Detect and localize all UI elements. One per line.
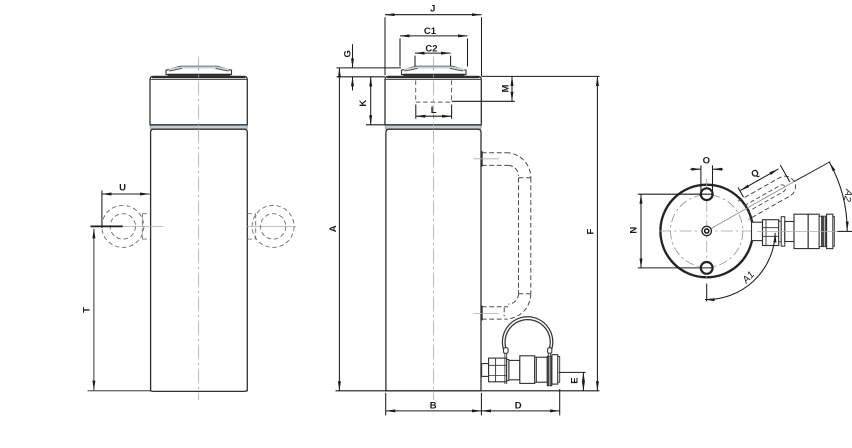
svg-text:O: O <box>703 155 710 166</box>
svg-text:N: N <box>629 227 640 234</box>
svg-text:D: D <box>515 401 522 412</box>
svg-text:Q: Q <box>749 167 761 180</box>
svg-text:M: M <box>501 84 512 92</box>
svg-text:K: K <box>358 100 369 107</box>
svg-text:E: E <box>569 377 580 383</box>
svg-text:C1: C1 <box>424 26 437 37</box>
svg-text:T: T <box>82 307 93 313</box>
svg-text:A2: A2 <box>841 187 852 202</box>
svg-text:A: A <box>328 225 339 232</box>
svg-text:B: B <box>430 401 437 412</box>
svg-text:U: U <box>119 183 126 194</box>
svg-text:A1: A1 <box>740 269 757 286</box>
svg-text:L: L <box>431 105 437 116</box>
svg-text:F: F <box>585 229 596 235</box>
svg-text:G: G <box>342 50 353 57</box>
svg-text:C2: C2 <box>425 43 437 54</box>
svg-text:J: J <box>430 4 435 15</box>
